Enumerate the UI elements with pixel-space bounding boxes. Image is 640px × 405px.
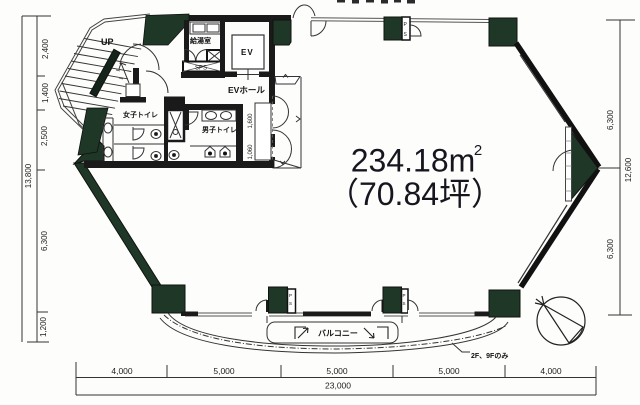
svg-text:バルコニー: バルコニー (318, 329, 358, 338)
svg-text:P: P (403, 293, 406, 298)
svg-text:EV: EV (241, 48, 254, 57)
svg-text:S: S (289, 301, 292, 306)
svg-text:5,000: 5,000 (438, 366, 460, 376)
svg-text:男子トイレ: 男子トイレ (202, 126, 237, 134)
svg-text:5,000: 5,000 (213, 366, 235, 376)
svg-text:2,400: 2,400 (41, 38, 50, 59)
svg-text:2: 2 (474, 142, 482, 159)
svg-text:P: P (289, 293, 292, 298)
svg-text:6,300: 6,300 (606, 238, 615, 259)
svg-text:1,600: 1,600 (248, 113, 254, 129)
svg-text:SPS: SPS (195, 66, 207, 72)
svg-text:2F、9Fのみ: 2F、9Fのみ (471, 352, 508, 360)
svg-text:UP: UP (101, 37, 114, 47)
svg-text:給湯室: 給湯室 (190, 36, 211, 45)
svg-text:2,500: 2,500 (40, 125, 49, 146)
svg-text:4,000: 4,000 (111, 366, 133, 376)
svg-text:4,000: 4,000 (540, 366, 562, 376)
svg-text:1,060: 1,060 (248, 144, 254, 160)
svg-text:23,000: 23,000 (325, 381, 351, 391)
svg-text:（70.84坪）: （70.84坪） (327, 176, 503, 212)
svg-text:女子トイレ: 女子トイレ (123, 110, 158, 119)
svg-text:13,800: 13,800 (24, 163, 33, 188)
svg-text:EVホール: EVホール (228, 85, 265, 95)
svg-text:12,600: 12,600 (624, 157, 633, 182)
svg-text:6,300: 6,300 (606, 109, 615, 130)
svg-text:6,300: 6,300 (40, 230, 49, 251)
svg-text:1,200: 1,200 (39, 316, 48, 337)
svg-text:S: S (403, 301, 406, 306)
svg-text:5,000: 5,000 (326, 366, 348, 376)
svg-text:234.18m: 234.18m (351, 143, 476, 179)
svg-text:1,400: 1,400 (41, 82, 50, 103)
